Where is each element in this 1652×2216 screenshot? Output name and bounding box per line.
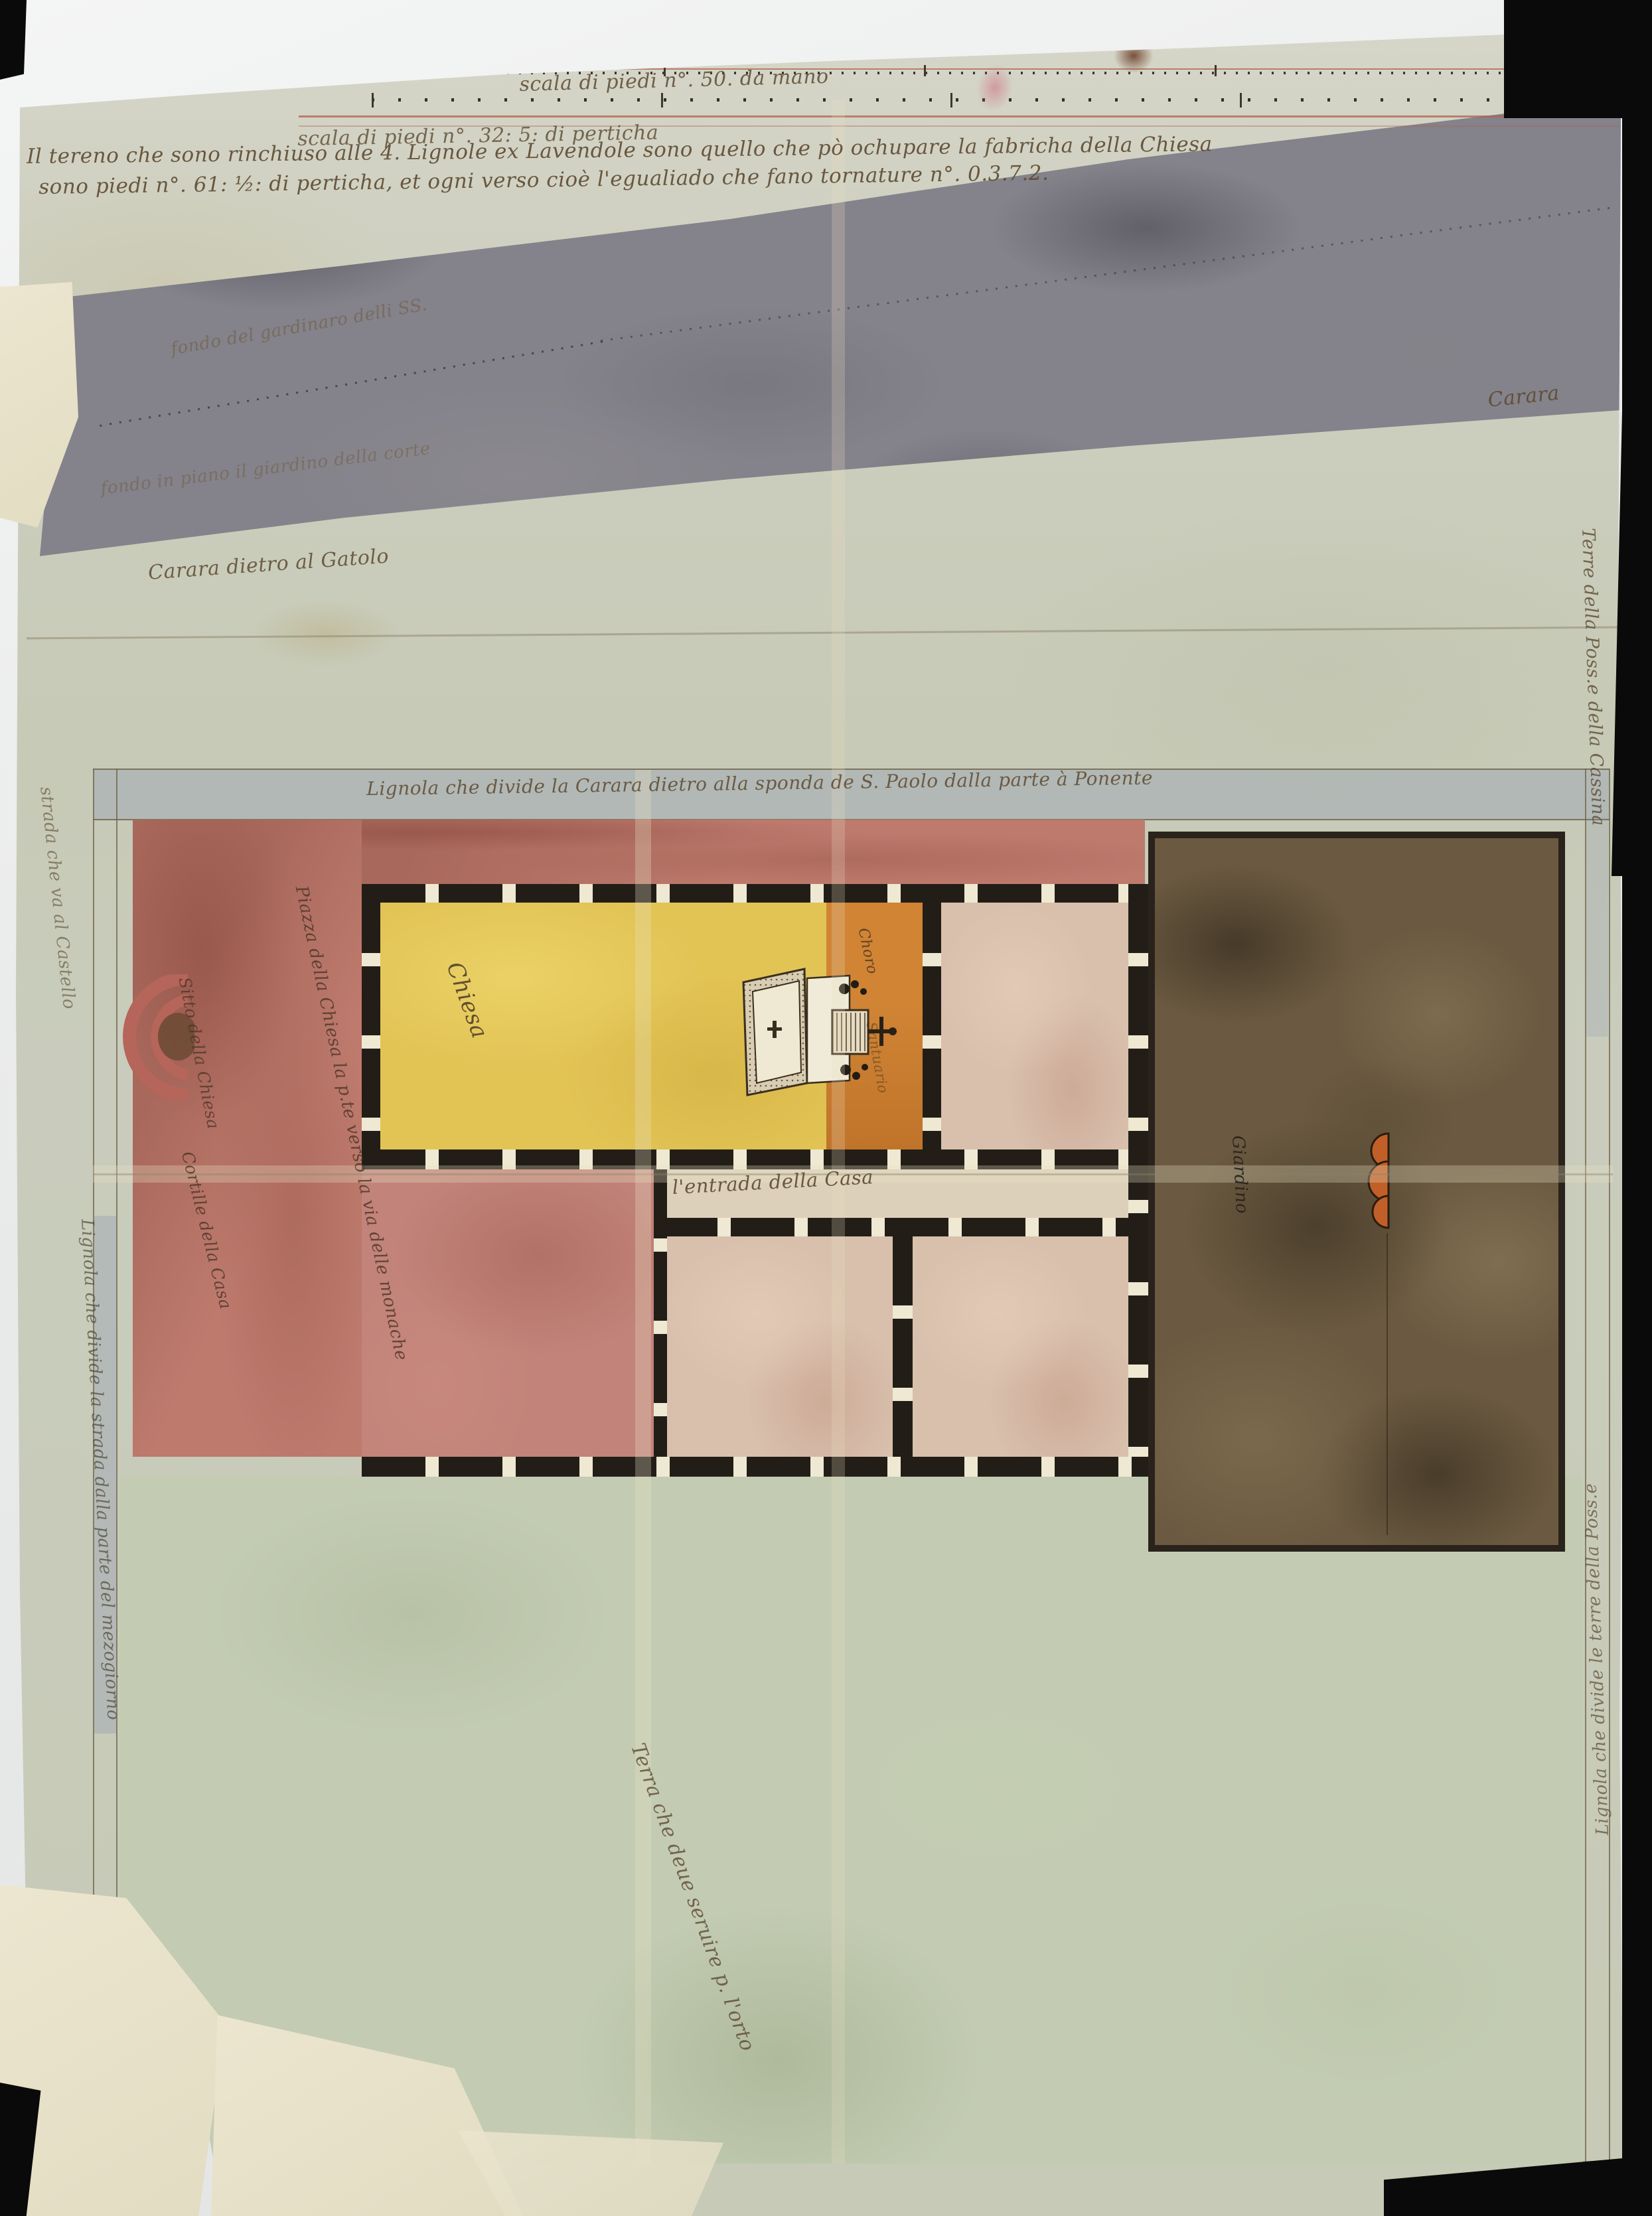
- scale-bar-pertiche-tick: [950, 93, 952, 108]
- fold-crease-vertical-1: [635, 770, 651, 2164]
- label-strada-castello: strada che va al Castello: [36, 786, 79, 1010]
- wall-choir-right: [923, 884, 941, 1169]
- label-carara-left: Carara dietro al Gatolo: [147, 545, 390, 585]
- wall-church-left: [362, 884, 380, 1169]
- wall-corridor-bottom: [654, 1218, 1148, 1236]
- plan-right-border-outer: [1609, 769, 1610, 2169]
- parchment-sheet: scala di piedi n°. 50. da mano scala di …: [0, 0, 1652, 2216]
- scanner-black-top-left: [0, 0, 27, 80]
- piazza-pink-left-block: [133, 820, 362, 1457]
- wall-complex-bottom: [362, 1457, 1148, 1477]
- scanned-document-page: scala di piedi n°. 50. da mano scala di …: [0, 0, 1652, 2216]
- scale-bar-50-tick: [372, 65, 374, 76]
- scale-bar-pertiche-tick: [661, 93, 663, 108]
- scale-bar-50-tick: [1215, 65, 1217, 76]
- ink-blot-stain: [1114, 38, 1154, 73]
- scale-bar-50-tick: [924, 65, 926, 76]
- wall-rooms-left: [654, 1169, 667, 1477]
- room-lower-right: [913, 1236, 1128, 1457]
- scanner-black-top-right: [1504, 0, 1652, 118]
- scale-bar-pertiche-tick: [372, 93, 374, 108]
- room-lower-left: [667, 1236, 893, 1457]
- scale-label-piedi-50: scala di piedi n°. 50. da mano: [519, 65, 829, 96]
- scale-bar-pertiche-rule: [299, 115, 1619, 117]
- stain: [252, 601, 398, 667]
- label-giardino: Giardino: [1228, 1135, 1252, 1215]
- cortile-pink-block: [362, 1169, 654, 1457]
- scale-bar-pertiche-tick: [1240, 93, 1242, 108]
- scale-bar-pertiche-dots: [372, 98, 1580, 102]
- room-upper-right: [941, 903, 1128, 1151]
- wall-church-top: [362, 884, 1148, 903]
- fold-crease-vertical-2: [832, 100, 845, 2164]
- plan-right-border-bluewash: [1586, 818, 1608, 1037]
- wall-rooms-middle: [893, 1236, 913, 1477]
- garden-path-line: [1387, 1233, 1388, 1535]
